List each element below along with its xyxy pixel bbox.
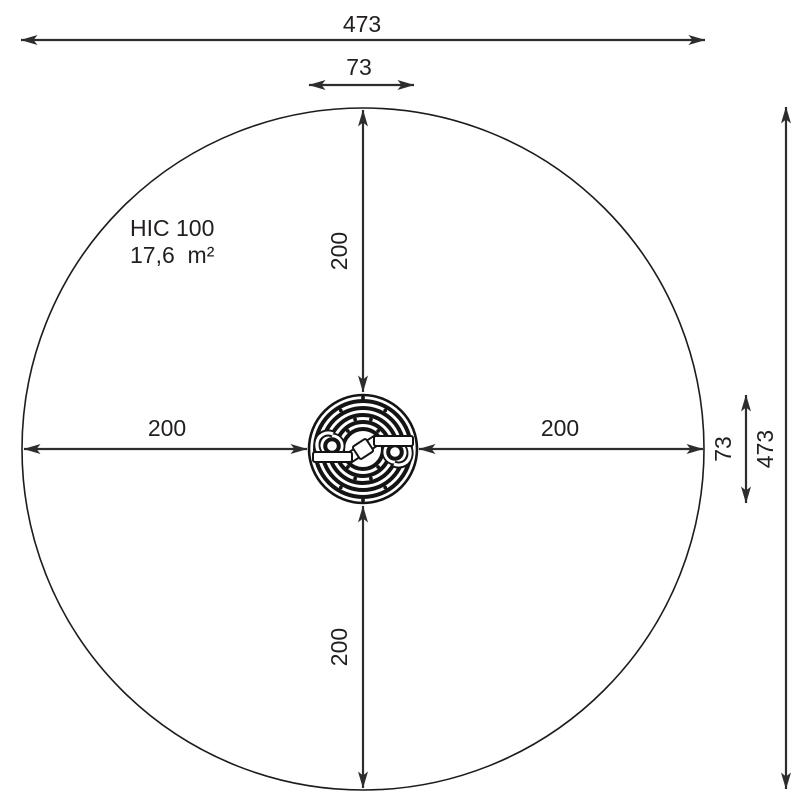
dim-clearance-right-label: 200 xyxy=(541,415,579,441)
crank-left-arm xyxy=(313,452,352,462)
handle-hub xyxy=(388,445,402,459)
dim-overall-height-label: 473 xyxy=(752,430,778,468)
handle-hub xyxy=(325,439,339,453)
crank-right-arm xyxy=(374,436,413,446)
dim-clearance-left-label: 200 xyxy=(148,415,186,441)
dim-device-height: 73 xyxy=(710,395,746,503)
dim-overall-height: 473 xyxy=(752,107,786,789)
dim-clearance-top-label: 200 xyxy=(326,232,352,270)
dim-overall-width: 473 xyxy=(21,11,705,40)
annotation-block: HIC 100 17,6 m² xyxy=(130,215,215,268)
safety-zone-plan-svg: 473 73 200 200 200 200 73 473 HIC 100 17… xyxy=(0,0,800,800)
drawing-canvas: 473 73 200 200 200 200 73 473 HIC 100 17… xyxy=(0,0,800,800)
dim-device-width: 73 xyxy=(309,54,414,85)
dim-overall-width-label: 473 xyxy=(343,11,381,37)
spinner-top-view xyxy=(309,395,417,503)
dim-device-width-label: 73 xyxy=(346,54,372,80)
dim-device-height-label: 73 xyxy=(710,436,736,462)
area-label: 17,6 m² xyxy=(130,242,215,268)
dim-clearance-bottom-label: 200 xyxy=(326,628,352,666)
hic-label: HIC 100 xyxy=(130,215,214,241)
